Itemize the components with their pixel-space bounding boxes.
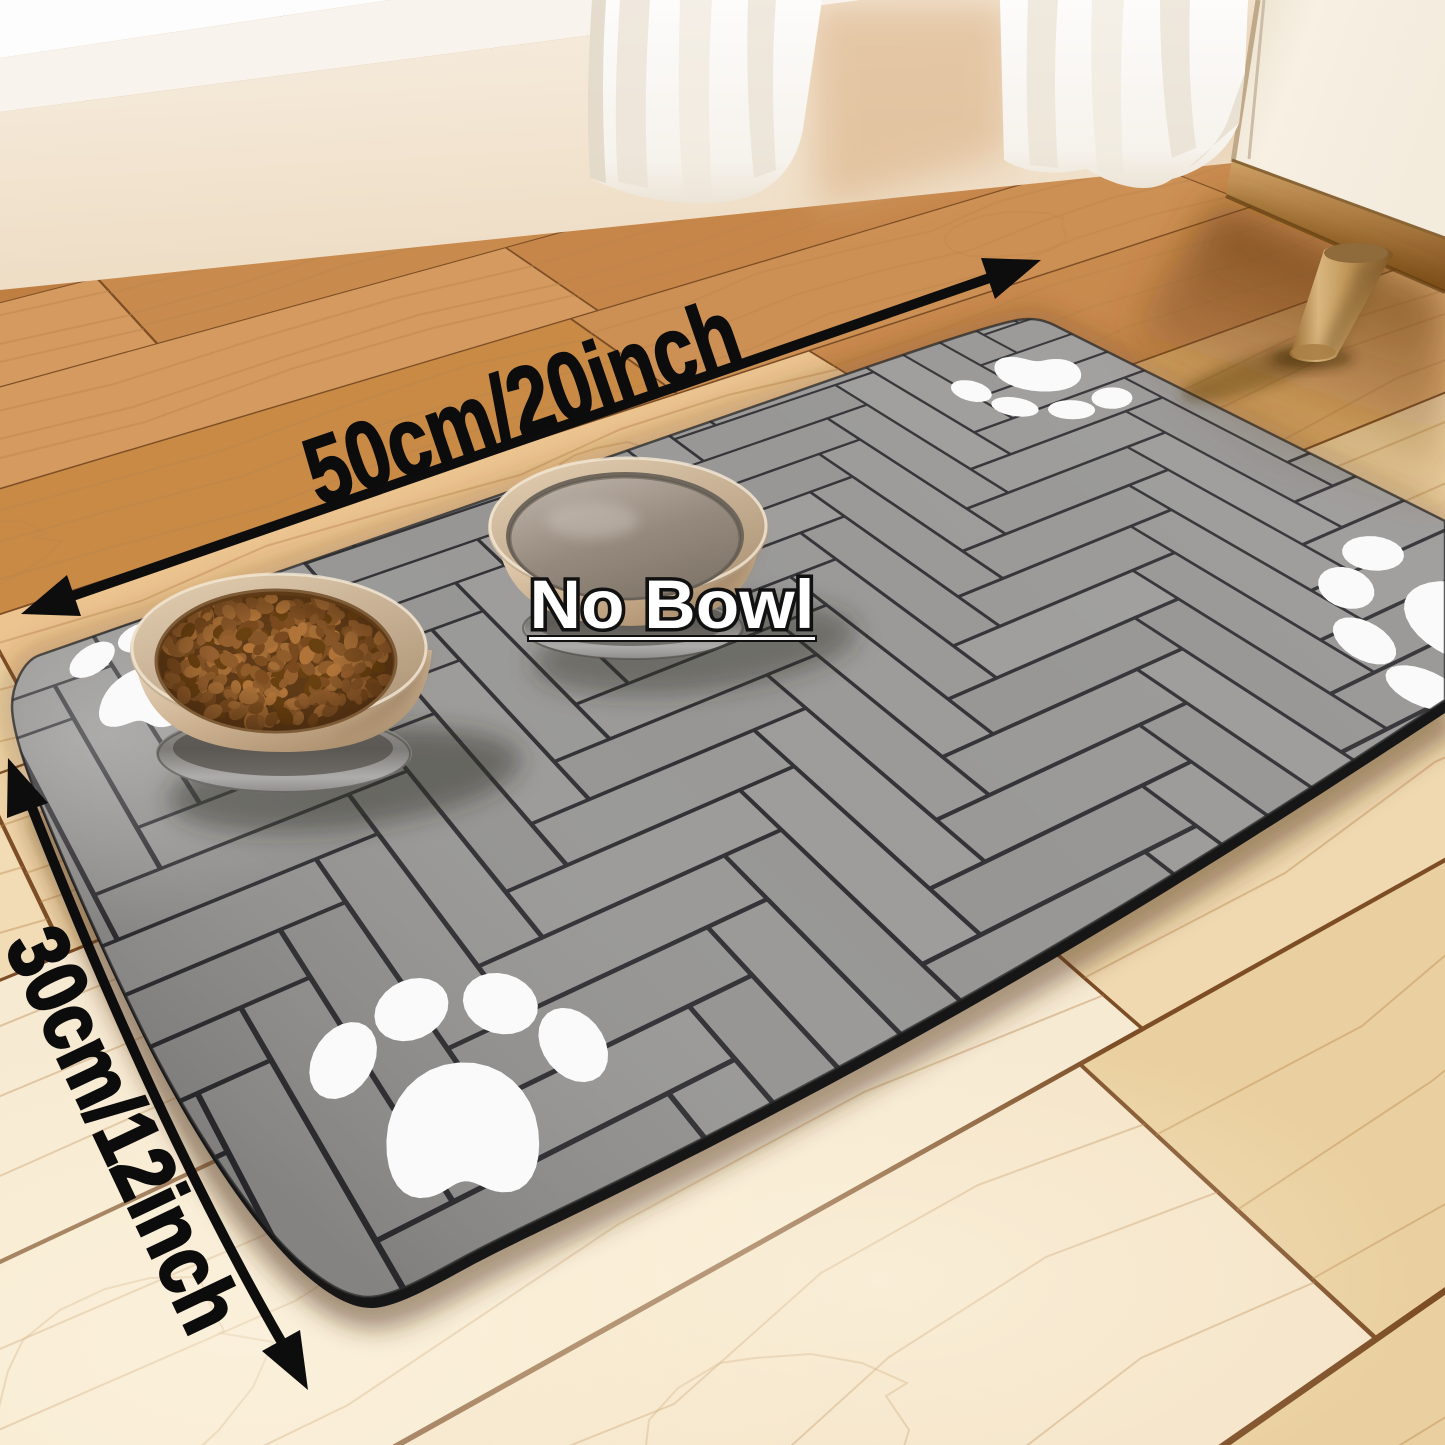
svg-text:No Bowl: No Bowl [530,566,815,643]
